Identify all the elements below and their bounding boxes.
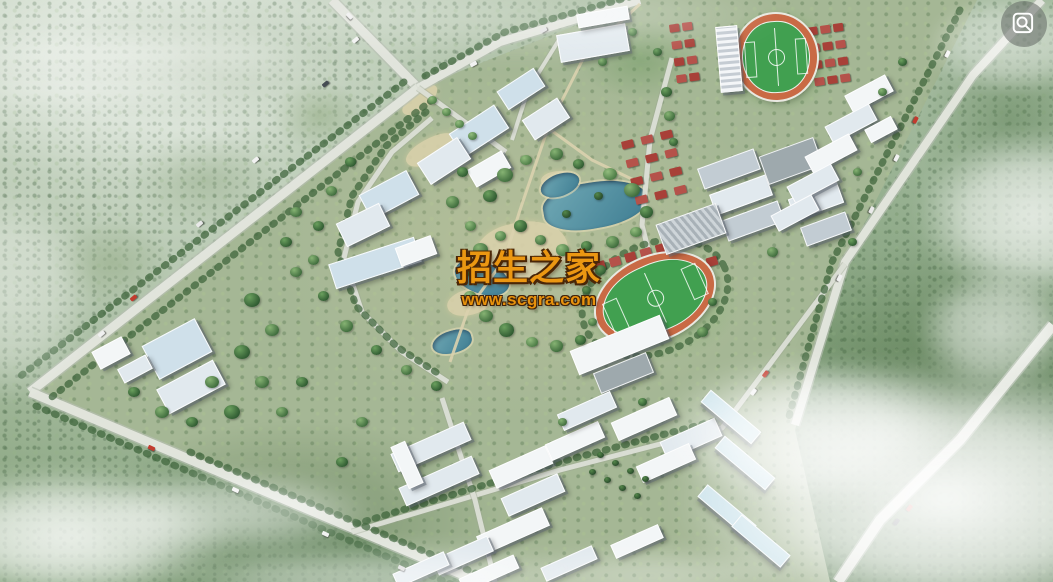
red-roof-block bbox=[827, 75, 838, 84]
tree bbox=[669, 138, 678, 146]
car bbox=[893, 518, 900, 526]
tree bbox=[581, 241, 592, 251]
penalty-box bbox=[795, 38, 808, 74]
tree bbox=[340, 320, 353, 331]
tree bbox=[473, 243, 488, 256]
red-roof-block bbox=[626, 157, 640, 168]
tree bbox=[499, 323, 514, 336]
tree bbox=[697, 327, 708, 337]
tree bbox=[653, 48, 662, 56]
tree bbox=[460, 264, 473, 275]
tree bbox=[640, 206, 653, 217]
campus-aerial-rendering: 招生之家 www.scgra.com bbox=[0, 0, 1053, 582]
tree bbox=[401, 365, 412, 375]
tree bbox=[514, 220, 527, 231]
red-roof-block bbox=[689, 72, 700, 81]
red-roof-block bbox=[682, 22, 693, 31]
red-roof-block bbox=[640, 134, 654, 145]
car bbox=[147, 445, 155, 452]
tree bbox=[468, 132, 477, 140]
penalty-box bbox=[744, 42, 757, 78]
red-roof-block bbox=[835, 40, 846, 49]
cloud bbox=[0, 0, 350, 180]
tree bbox=[898, 58, 907, 66]
stadium-field bbox=[740, 19, 813, 96]
tree bbox=[308, 255, 319, 265]
tree bbox=[597, 452, 604, 458]
tree bbox=[628, 28, 637, 36]
red-roof-block bbox=[671, 40, 682, 49]
cloud bbox=[917, 128, 1053, 303]
tree bbox=[595, 265, 606, 275]
tree bbox=[661, 87, 672, 97]
red-roof-block bbox=[820, 25, 831, 34]
tree bbox=[483, 190, 497, 202]
red-roof-block bbox=[825, 58, 836, 67]
tree bbox=[604, 477, 611, 483]
tree bbox=[606, 236, 619, 247]
cloud bbox=[0, 34, 330, 76]
tree bbox=[550, 148, 563, 159]
tree bbox=[642, 476, 649, 482]
red-roof-block bbox=[840, 73, 851, 82]
red-roof-block bbox=[837, 56, 848, 65]
red-roof-block bbox=[814, 77, 825, 86]
image-zoom-icon bbox=[1011, 11, 1037, 37]
image-zoom-button[interactable] bbox=[1001, 1, 1047, 47]
tree bbox=[848, 238, 857, 246]
car bbox=[252, 156, 260, 164]
tree bbox=[767, 247, 778, 257]
car bbox=[539, 27, 547, 34]
red-roof-block bbox=[654, 190, 668, 201]
tree bbox=[878, 88, 887, 96]
car bbox=[196, 220, 204, 228]
red-roof-block bbox=[822, 41, 833, 50]
tree bbox=[155, 406, 169, 418]
red-roof-block bbox=[674, 57, 685, 66]
tree bbox=[598, 58, 607, 66]
tree bbox=[624, 183, 640, 197]
tree bbox=[255, 376, 269, 388]
tree bbox=[619, 485, 626, 491]
tree bbox=[497, 168, 513, 182]
car bbox=[322, 80, 330, 88]
red-roof-block bbox=[669, 166, 683, 177]
tree bbox=[550, 340, 563, 351]
cloud bbox=[915, 270, 1053, 390]
tree bbox=[535, 235, 546, 245]
car bbox=[352, 36, 360, 44]
tree bbox=[638, 398, 647, 406]
red-roof-block bbox=[664, 148, 678, 159]
red-roof-block bbox=[650, 171, 664, 182]
red-roof-block bbox=[686, 55, 697, 64]
tree bbox=[558, 418, 567, 426]
tree bbox=[205, 376, 219, 388]
tree bbox=[224, 405, 240, 419]
tree bbox=[664, 111, 675, 121]
tree bbox=[589, 469, 596, 475]
tree bbox=[575, 335, 586, 345]
tree bbox=[428, 96, 437, 104]
red-roof-block bbox=[621, 139, 635, 150]
car bbox=[906, 504, 913, 512]
tree bbox=[627, 468, 634, 474]
terrain-patch bbox=[50, 0, 350, 130]
tree bbox=[442, 108, 451, 116]
tree bbox=[265, 324, 279, 336]
tree bbox=[244, 293, 260, 307]
tree bbox=[371, 345, 382, 355]
tree bbox=[455, 120, 464, 128]
red-roof-block bbox=[669, 23, 680, 32]
penalty-box bbox=[680, 263, 708, 300]
tree bbox=[708, 298, 717, 306]
cloud bbox=[0, 469, 233, 582]
tree bbox=[853, 168, 862, 176]
terrain-patch bbox=[52, 220, 172, 305]
tree bbox=[582, 286, 591, 294]
red-roof-block bbox=[674, 185, 688, 196]
cloud bbox=[0, 74, 245, 102]
tree bbox=[588, 318, 597, 326]
tree bbox=[465, 221, 476, 231]
tree bbox=[495, 231, 506, 241]
tree bbox=[594, 192, 603, 200]
red-roof-block bbox=[833, 23, 844, 32]
tree bbox=[634, 493, 641, 499]
tree bbox=[446, 196, 459, 207]
tree bbox=[313, 221, 324, 231]
tree bbox=[234, 345, 250, 359]
red-roof-block bbox=[635, 194, 649, 205]
tree bbox=[562, 210, 571, 218]
terrain-patch bbox=[271, 80, 366, 150]
red-roof-block bbox=[645, 153, 659, 164]
tree bbox=[431, 381, 442, 391]
tree bbox=[457, 167, 468, 177]
tree bbox=[603, 168, 617, 180]
tree bbox=[573, 159, 584, 169]
car bbox=[346, 12, 354, 20]
tree bbox=[318, 291, 329, 301]
car bbox=[231, 487, 239, 494]
car bbox=[321, 531, 329, 538]
tree bbox=[326, 186, 337, 196]
tree bbox=[345, 157, 356, 167]
car bbox=[130, 294, 138, 302]
red-roof-block bbox=[684, 39, 695, 48]
tree bbox=[479, 310, 493, 322]
tree bbox=[556, 244, 569, 255]
tree bbox=[612, 460, 619, 466]
red-roof-block bbox=[676, 74, 687, 83]
terrain-patch bbox=[130, 133, 280, 228]
